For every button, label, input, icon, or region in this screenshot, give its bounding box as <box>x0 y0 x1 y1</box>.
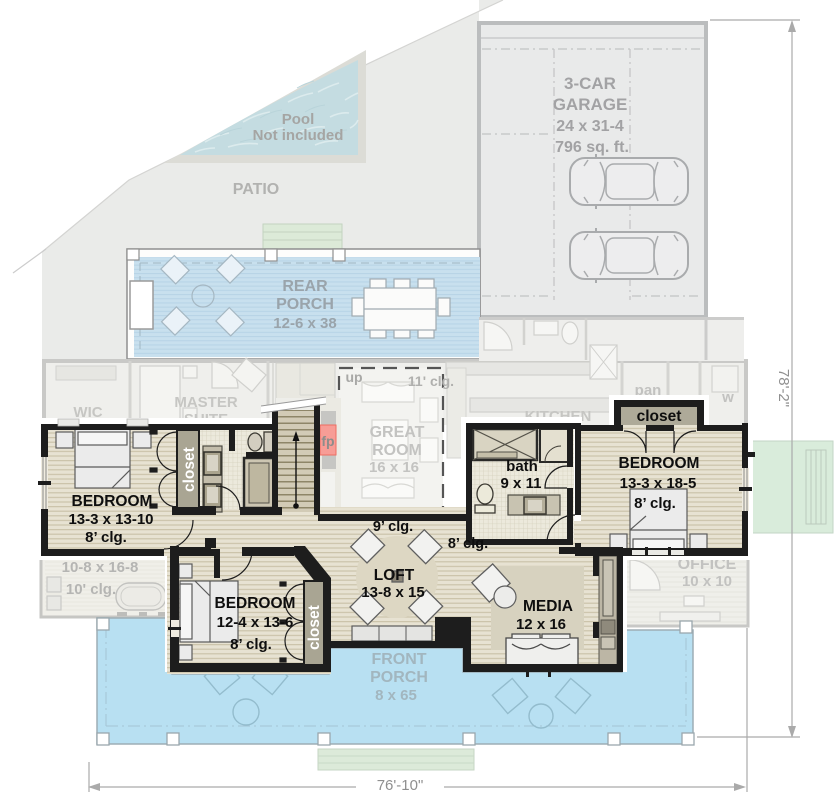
svg-text:MEDIA: MEDIA <box>523 598 573 615</box>
svg-text:9’ clg.: 9’ clg. <box>373 519 413 535</box>
svg-text:closet: closet <box>637 408 682 425</box>
svg-text:LOFT: LOFT <box>374 567 415 584</box>
svg-text:8’ clg.: 8’ clg. <box>85 529 127 546</box>
svg-text:Pool: Pool <box>282 111 315 128</box>
svg-text:PORCH: PORCH <box>276 296 334 313</box>
svg-text:PATIO: PATIO <box>233 181 280 198</box>
svg-text:w: w <box>721 389 734 406</box>
svg-text:10 x 10: 10 x 10 <box>682 573 732 590</box>
svg-text:10' clg.: 10' clg. <box>66 581 116 598</box>
svg-text:PORCH: PORCH <box>370 669 428 686</box>
svg-text:Not included: Not included <box>253 127 344 144</box>
svg-text:up: up <box>345 369 362 385</box>
svg-text:BEDROOM: BEDROOM <box>619 455 700 472</box>
svg-text:8’ clg.: 8’ clg. <box>448 536 488 552</box>
svg-text:11' clg.: 11' clg. <box>408 373 454 389</box>
svg-text:76'-10": 76'-10" <box>377 777 424 794</box>
svg-text:10-8 x 16-8: 10-8 x 16-8 <box>62 559 139 576</box>
svg-text:78'-2": 78'-2" <box>775 369 792 407</box>
svg-text:GARAGE: GARAGE <box>553 95 628 114</box>
svg-text:fp: fp <box>321 433 334 449</box>
svg-text:FRONT: FRONT <box>371 651 426 668</box>
svg-text:ROOM: ROOM <box>372 442 422 459</box>
svg-text:GREAT: GREAT <box>370 424 425 441</box>
svg-text:3-CAR: 3-CAR <box>564 74 616 93</box>
svg-text:BEDROOM: BEDROOM <box>215 595 296 612</box>
svg-text:13-8 x 15: 13-8 x 15 <box>361 584 424 601</box>
svg-text:REAR: REAR <box>282 278 328 295</box>
svg-text:24 x 31-4: 24 x 31-4 <box>556 118 624 135</box>
svg-text:8’ clg.: 8’ clg. <box>230 636 272 653</box>
svg-text:12 x 16: 12 x 16 <box>516 616 566 633</box>
svg-text:9 x 11: 9 x 11 <box>501 475 542 492</box>
svg-text:bath: bath <box>506 458 538 475</box>
svg-text:closet: closet <box>181 447 198 492</box>
svg-text:12-6 x 38: 12-6 x 38 <box>273 315 336 332</box>
svg-text:closet: closet <box>306 605 323 650</box>
svg-text:12-4 x 13-6: 12-4 x 13-6 <box>217 614 294 631</box>
svg-text:13-3 x 18-5: 13-3 x 18-5 <box>620 475 697 492</box>
svg-text:796 sq. ft.: 796 sq. ft. <box>555 139 629 156</box>
svg-text:BEDROOM: BEDROOM <box>72 493 153 510</box>
svg-text:13-3 x 13-10: 13-3 x 13-10 <box>68 511 153 528</box>
svg-text:8’ clg.: 8’ clg. <box>634 495 676 512</box>
svg-text:16 x 16: 16 x 16 <box>369 459 419 476</box>
svg-text:MASTER: MASTER <box>174 394 238 411</box>
svg-text:8 x 65: 8 x 65 <box>375 687 417 704</box>
